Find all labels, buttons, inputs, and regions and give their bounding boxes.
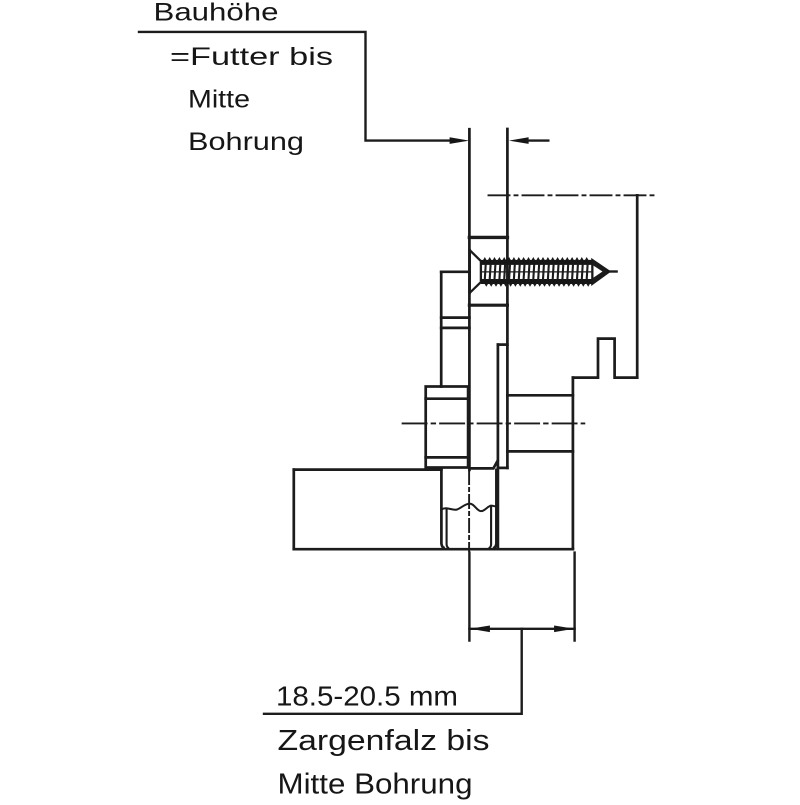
svg-text:Zargenfalz bis: Zargenfalz bis: [278, 725, 490, 757]
svg-text:Bauhöhe: Bauhöhe: [154, 0, 279, 27]
svg-text:Mitte: Mitte: [188, 86, 250, 114]
svg-text:18.5-20.5 mm: 18.5-20.5 mm: [276, 681, 458, 712]
svg-text:Mitte Bohrung: Mitte Bohrung: [278, 769, 473, 801]
svg-text:Bohrung: Bohrung: [188, 128, 304, 156]
svg-text:=Futter bis: =Futter bis: [170, 43, 333, 71]
